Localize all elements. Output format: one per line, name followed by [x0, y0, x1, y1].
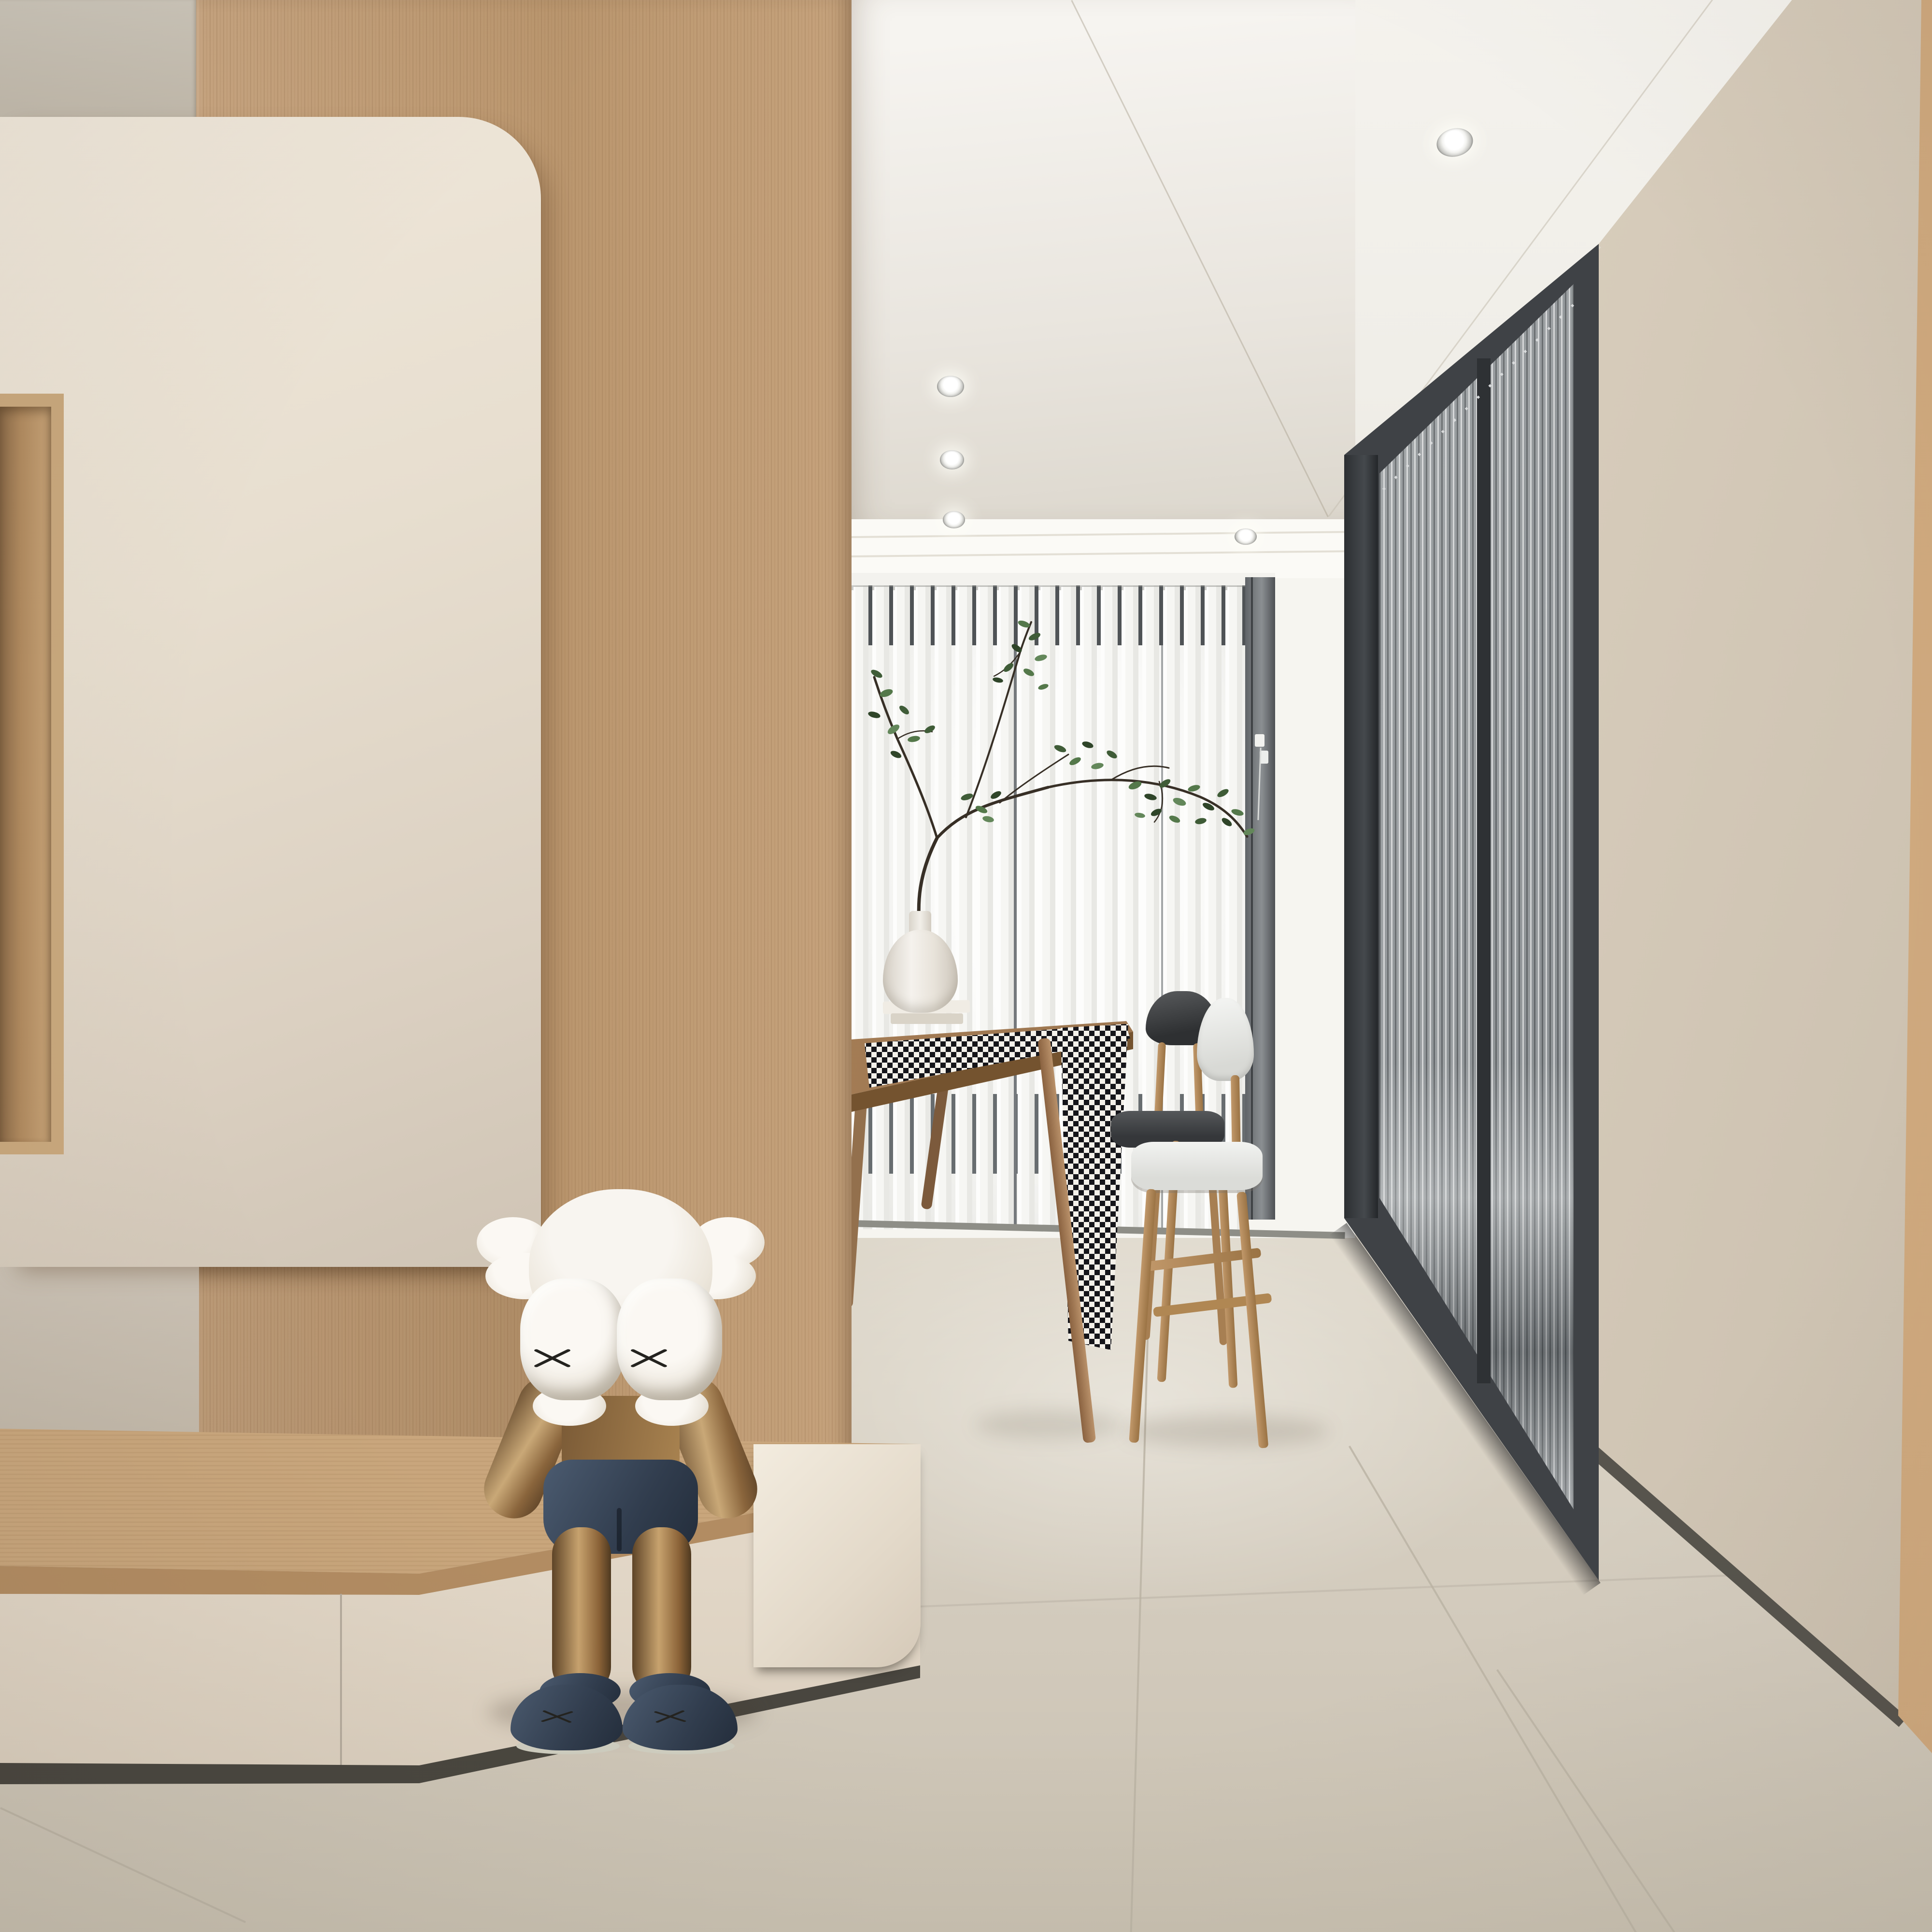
x-mark-icon [626, 1345, 672, 1372]
drawer-gap [340, 1594, 342, 1765]
books-stack [891, 1013, 963, 1024]
x-mark-icon [536, 1707, 577, 1725]
chair-white-post [1231, 1075, 1241, 1148]
ceiling-strip-left [0, 0, 196, 118]
figure-fist-left [520, 1279, 625, 1400]
figure-leg-right [632, 1527, 691, 1694]
tv-panel [0, 117, 541, 1267]
door-divider [1477, 358, 1491, 1383]
door-stile [1344, 455, 1378, 1218]
recessed-downlight [943, 511, 965, 528]
table-shadow [976, 1410, 1121, 1439]
figure-fist-right [617, 1279, 722, 1400]
blinds-hooks [852, 586, 1275, 590]
interior-render [0, 0, 1932, 1932]
ceiling-cove [852, 519, 1355, 578]
x-mark-icon [529, 1345, 575, 1372]
recessed-downlight [937, 376, 964, 397]
branch-stems [874, 622, 1247, 932]
column-plinth [753, 1444, 921, 1667]
kaws-figure [476, 1189, 766, 1730]
blinds-track [852, 573, 1275, 585]
figure-leg-left [552, 1527, 611, 1694]
recess-back-panel [0, 1265, 199, 1438]
dining-ceiling [852, 0, 1355, 521]
niche-interior [0, 407, 51, 1142]
recessed-downlight [940, 450, 964, 469]
recessed-downlight [1235, 528, 1257, 545]
branch-arrangement [840, 594, 1275, 985]
figure-shorts-split [617, 1508, 622, 1551]
x-mark-icon [649, 1707, 690, 1725]
chairs-shadow [1125, 1415, 1328, 1447]
chair-white-seat [1131, 1142, 1263, 1190]
